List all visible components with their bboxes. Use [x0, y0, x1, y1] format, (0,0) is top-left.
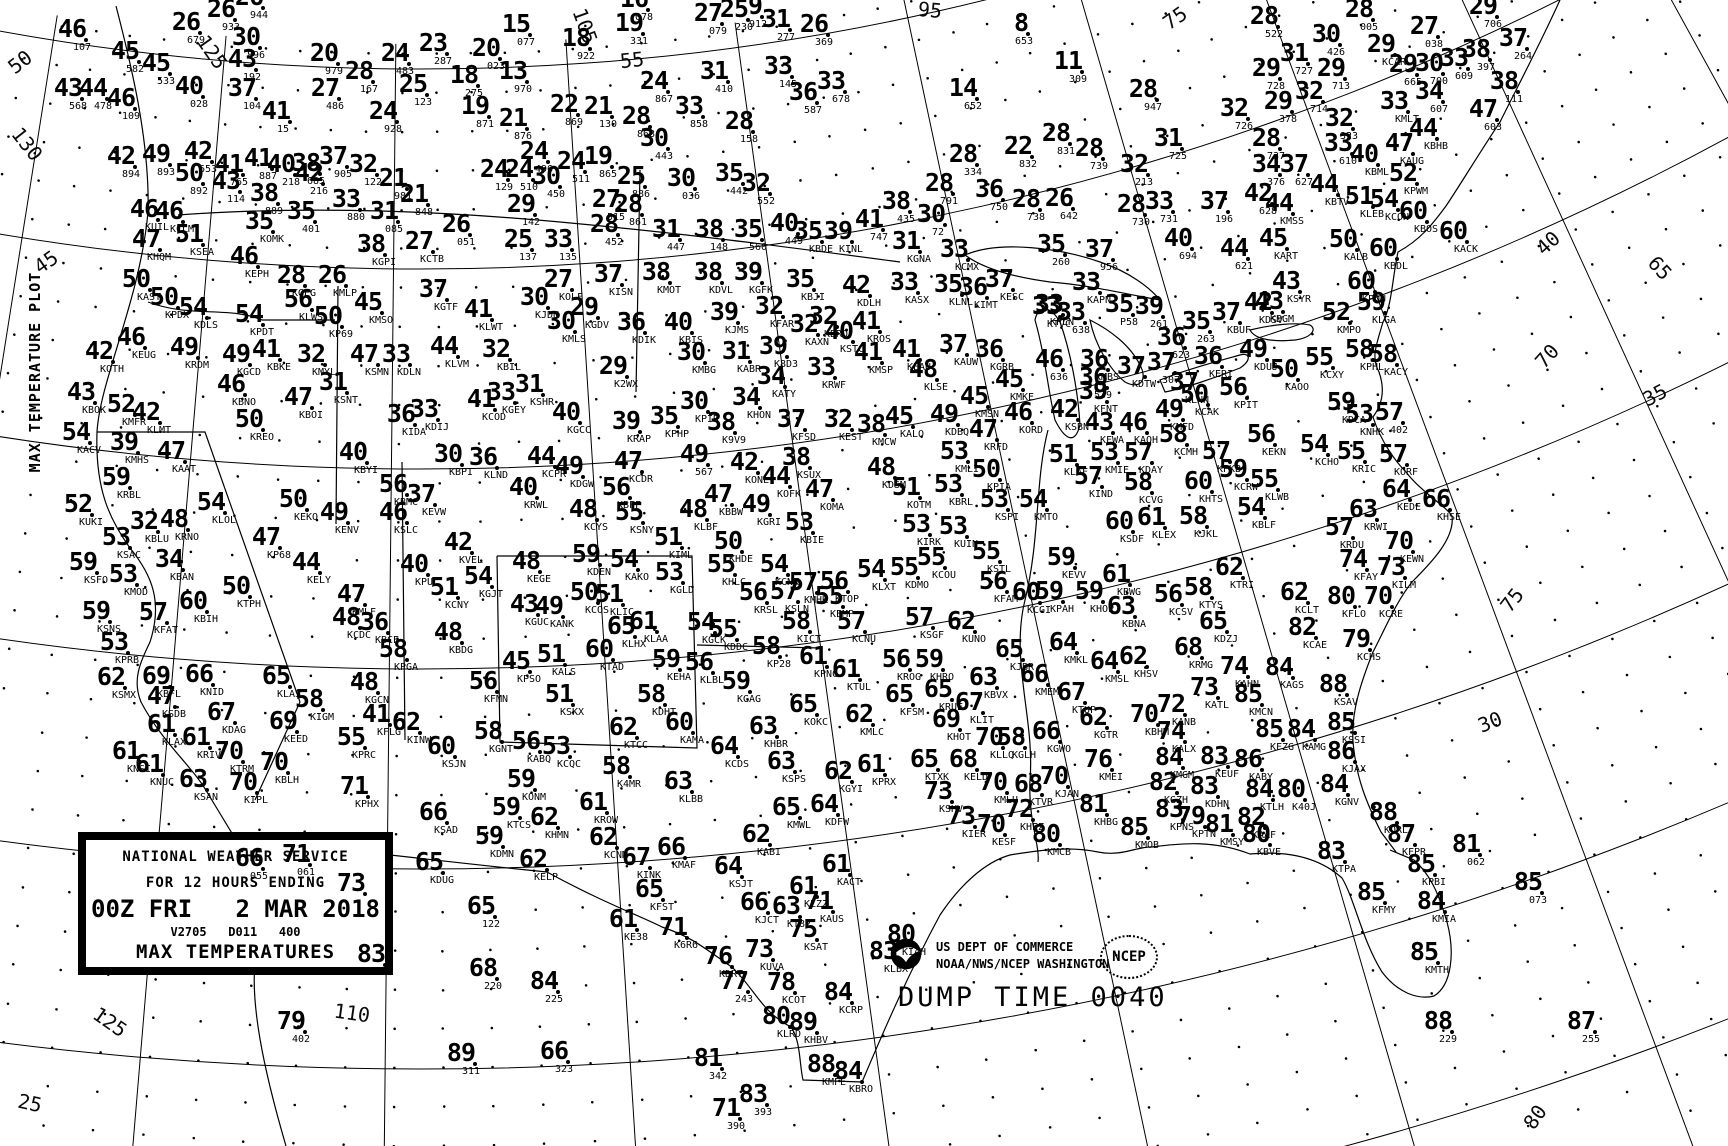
station-temp: 83 — [739, 1084, 767, 1105]
dump-time-label: DUMP TIME 0040 — [898, 982, 1168, 1013]
station-id: KEED — [284, 735, 308, 745]
station-id: KBHB — [1424, 142, 1448, 152]
station-id: 452 — [605, 238, 623, 248]
station-id: KHQM — [147, 253, 171, 263]
station-id: KRBL — [117, 491, 141, 501]
station-temp: 85 — [1407, 854, 1435, 875]
station-id: KBNA — [1122, 620, 1146, 630]
station-temp: 55 — [707, 554, 735, 575]
agency-line-2: NOAA/NWS/NCEP WASHINGTON — [936, 956, 1109, 973]
station-temp: 35 — [1182, 311, 1210, 332]
station-id: 831 — [1057, 147, 1075, 157]
station-id: 511 — [572, 175, 590, 185]
station-temp: 40 — [400, 554, 428, 575]
station-temp: 48 — [569, 499, 597, 520]
station-temp: 66 — [235, 848, 263, 869]
station-temp: 66 — [657, 837, 685, 858]
station-id: 747 — [870, 233, 888, 243]
station-temp: 40 — [339, 442, 367, 463]
station-id: KCRP — [839, 1006, 863, 1016]
station-temp: 39 — [734, 262, 762, 283]
station-id: K9V9 — [722, 436, 746, 446]
station-temp: 46 — [217, 374, 245, 395]
station-id: KGEY — [502, 406, 526, 416]
station-temp: 64 — [810, 794, 838, 815]
station-temp: 54 — [235, 304, 263, 325]
station-temp: 85 — [1327, 712, 1355, 733]
station-temp: 88 — [1319, 674, 1347, 695]
station-id: KLHX — [622, 640, 646, 650]
station-temp: 47 — [704, 484, 732, 505]
station-temp: 40 — [664, 312, 692, 333]
station-temp: 33 — [1145, 191, 1173, 212]
station-temp: 28 — [590, 214, 618, 235]
station-temp: 69 — [269, 711, 297, 732]
station-id: 123 — [414, 98, 432, 108]
station-id: KHBG — [1094, 818, 1118, 828]
station-id: KEKO — [294, 513, 318, 523]
station-id: KELY — [307, 576, 331, 586]
station-temp: 28 — [1129, 79, 1157, 100]
station-temp: 22 — [550, 94, 578, 115]
station-id: 652 — [964, 102, 982, 112]
station-temp: 28 — [1042, 123, 1070, 144]
station-temp: 34 — [732, 387, 760, 408]
station-temp: 62 — [947, 611, 975, 632]
station-temp: 61 — [609, 909, 637, 930]
station-id: 055 — [250, 872, 268, 882]
station-temp: 63 — [1107, 596, 1135, 617]
station-temp: 84 — [834, 1061, 862, 1082]
station-id: KCXY — [1320, 371, 1344, 381]
station-id: KHON — [747, 411, 771, 421]
station-temp: 47 — [147, 686, 175, 707]
station-temp: 84 — [1320, 774, 1348, 795]
station-temp: 47 — [614, 451, 642, 472]
station-temp: 84 — [824, 982, 852, 1003]
station-temp: 32 — [742, 173, 770, 194]
station-temp: 66 — [419, 802, 447, 823]
station-temp: 50 — [972, 459, 1000, 480]
station-temp: 8 — [1014, 13, 1028, 34]
station-temp: 31 — [319, 372, 347, 393]
station-temp: 19 — [461, 96, 489, 117]
station-id: P58 — [1120, 318, 1138, 328]
legend-product: MAX TEMPERATURES — [86, 941, 385, 963]
station-temp: 24 — [520, 141, 548, 162]
station-temp: 42 — [107, 146, 135, 167]
station-temp: 89 — [447, 1043, 475, 1064]
station-id: 552 — [757, 197, 775, 207]
station-id: KGPI — [372, 258, 396, 268]
station-temp: 46 — [1035, 349, 1063, 370]
station-temp: 59 — [915, 649, 943, 670]
station-temp: 59 — [102, 467, 130, 488]
station-temp: 42 — [730, 452, 758, 473]
station-temp: 33 — [544, 229, 572, 250]
station-id: KLBX — [884, 965, 908, 975]
station-temp: 49 — [680, 444, 708, 465]
station-temp: 23 — [419, 33, 447, 54]
station-id: KTVC — [1047, 320, 1071, 330]
station-temp: 33 — [487, 382, 515, 403]
station-temp: 43 — [54, 78, 82, 99]
station-temp: 64 — [1049, 632, 1077, 653]
station-temp: 57 — [1379, 444, 1407, 465]
station-id: 892 — [190, 187, 208, 197]
station-id: KDLN — [397, 368, 421, 378]
station-temp: 59 — [1035, 581, 1063, 602]
station-id: 893 — [157, 168, 175, 178]
station-temp: 68 — [949, 749, 977, 770]
station-id: KSAD — [434, 826, 458, 836]
station-id: KILM — [1392, 581, 1416, 591]
station-temp: 63 — [767, 751, 795, 772]
station-id: 730 — [1132, 218, 1150, 228]
station-id: KTCS — [507, 821, 531, 831]
station-temp: 57 — [1325, 517, 1353, 538]
station-temp: 50 — [1180, 384, 1208, 405]
station-temp: 62 — [609, 717, 637, 738]
station-id: 610 — [1339, 157, 1357, 167]
station-temp: 34 — [155, 549, 183, 570]
station-temp: 73 — [1377, 557, 1405, 578]
station-temp: 53 — [902, 514, 930, 535]
station-temp: 26 — [235, 0, 263, 7]
station-id: KHSV — [1134, 670, 1158, 680]
station-temp: 38 — [1462, 39, 1490, 60]
station-temp: 87 — [1387, 824, 1415, 845]
station-temp: 44 — [1409, 118, 1437, 139]
station-id: 079 — [709, 27, 727, 37]
station-temp: 50 — [150, 287, 178, 308]
station-id: KDMO — [905, 581, 929, 591]
station-id: KRNO — [175, 533, 199, 543]
station-id: KCAE — [1303, 641, 1327, 651]
station-temp: 36 — [360, 612, 388, 633]
station-temp: 55 — [1250, 469, 1278, 490]
station-temp: 31 — [370, 201, 398, 222]
station-temp: 52 — [64, 494, 92, 515]
station-temp: 62 — [1079, 707, 1107, 728]
station-temp: 82 — [1149, 772, 1177, 793]
station-id: KCLT — [1295, 606, 1319, 616]
station-temp: 73 — [337, 873, 365, 894]
station-id: 871 — [476, 120, 494, 130]
station-temp: 58 — [474, 721, 502, 742]
station-temp: 35 — [287, 201, 315, 222]
station-temp: 47 — [337, 584, 365, 605]
station-temp: 56 — [602, 477, 630, 498]
station-id: KSNT — [334, 396, 358, 406]
station-temp: 54 — [1019, 489, 1047, 510]
station-temp: 38 — [357, 234, 385, 255]
station-temp: 58 — [637, 684, 665, 705]
station-temp: 44 — [1220, 238, 1248, 259]
station-temp: 55 — [890, 557, 918, 578]
station-temp: 84 — [1155, 747, 1183, 768]
station-temp: 65 — [924, 679, 952, 700]
station-temp: 59 — [1357, 292, 1385, 313]
station-id: KFMN — [484, 695, 508, 705]
station-id: 880 — [347, 213, 365, 223]
station-temp: 70 — [1130, 704, 1158, 725]
station-id: KORD — [1019, 426, 1043, 436]
station-id: KEUG — [132, 351, 156, 361]
station-temp: 58 — [1124, 472, 1152, 493]
station-id: 378 — [1279, 115, 1297, 125]
station-id: KBBW — [719, 508, 743, 518]
station-temp: 30 — [1312, 24, 1340, 45]
station-temp: 44 — [1265, 193, 1293, 214]
station-temp: 70 — [977, 814, 1005, 835]
station-id: KSEA — [190, 248, 214, 258]
station-temp: 62 — [519, 849, 547, 870]
station-id: 894 — [122, 170, 140, 180]
station-id: 486 — [326, 102, 344, 112]
station-temp: 38 — [1490, 71, 1518, 92]
station-id: KCOS — [585, 606, 609, 616]
station-id: KMLS — [562, 335, 586, 345]
station-id: KLWB — [1265, 493, 1289, 503]
station-id: KANK — [550, 620, 574, 630]
station-id: KPRX — [872, 778, 896, 788]
station-temp: 47 — [969, 419, 997, 440]
station-temp: 65 — [910, 749, 938, 770]
station-id: 956 — [1100, 263, 1118, 273]
station-temp: 31 — [892, 231, 920, 252]
station-temp: 59 — [1075, 581, 1103, 602]
station-temp: 72 — [1005, 799, 1033, 820]
station-temp: 21 — [499, 108, 527, 129]
station-temp: 61 — [135, 754, 163, 775]
station-temp: 28 — [1075, 138, 1103, 159]
station-temp: 60 — [1399, 201, 1427, 222]
station-temp: 59 — [492, 797, 520, 818]
station-temp: 60 — [665, 712, 693, 733]
station-temp: 52 — [107, 394, 135, 415]
station-temp: 79 — [277, 1011, 305, 1032]
station-id: KRFD — [984, 443, 1008, 453]
station-temp: 55 — [815, 586, 843, 607]
station-id: KLOL — [212, 516, 236, 526]
station-temp: 84 — [530, 971, 558, 992]
station-temp: 28 — [1345, 0, 1373, 19]
station-temp: 48 — [679, 499, 707, 520]
station-temp: 61 — [799, 646, 827, 667]
station-temp: 62 — [742, 824, 770, 845]
station-temp: 54 — [197, 492, 225, 513]
station-temp: 51 — [545, 684, 573, 705]
station-id: KLSE — [924, 383, 948, 393]
station-id: KLBB — [679, 795, 703, 805]
station-id: 568 — [69, 102, 87, 112]
station-temp: 13 — [499, 61, 527, 82]
station-temp: 61 — [629, 611, 657, 632]
station-temp: 37 — [1117, 356, 1145, 377]
station-id: KTUL — [847, 683, 871, 693]
station-id: KAMA — [680, 736, 704, 746]
station-id: KSFO — [84, 576, 108, 586]
station-id: 567 — [695, 468, 713, 478]
station-id: KIDA — [402, 428, 426, 438]
station-id: KART — [1274, 252, 1298, 262]
station-id: 450 — [547, 190, 565, 200]
station-id: KSPI — [995, 513, 1019, 523]
station-temp: 33 — [940, 239, 968, 260]
station-id: 725 — [1169, 152, 1187, 162]
station-temp: 32 — [297, 344, 325, 365]
station-temp: 31 — [722, 341, 750, 362]
station-temp: 84 — [1417, 891, 1445, 912]
station-id: KBVE — [1257, 848, 1281, 858]
station-temp: 50 — [1329, 229, 1357, 250]
station-id: KMTH — [1425, 966, 1449, 976]
station-temp: 18 — [450, 65, 478, 86]
station-id: KHMN — [545, 831, 569, 841]
station-temp: 47 — [252, 527, 280, 548]
station-temp: 60 — [585, 639, 613, 660]
station-id: 229 — [1439, 1035, 1457, 1045]
station-id: KGNV — [1335, 798, 1359, 808]
station-id: KEDE — [1397, 503, 1421, 513]
station-temp: 73 — [745, 939, 773, 960]
station-id: KGTF — [434, 303, 458, 313]
station-id: 947 — [1144, 103, 1162, 113]
station-temp: 54 — [610, 549, 638, 570]
station-temp: 30 — [547, 311, 575, 332]
station-temp: 70 — [979, 772, 1007, 793]
station-temp: 85 — [1410, 942, 1438, 963]
station-id: KLND — [484, 471, 508, 481]
station-temp: 47 — [1469, 99, 1497, 120]
station-temp: 65 — [772, 797, 800, 818]
station-id: KSAT — [804, 943, 828, 953]
station-temp: 11 — [1054, 51, 1082, 72]
station-temp: 36 — [789, 82, 817, 103]
station-temp: 31 — [1280, 43, 1308, 64]
station-id: KSMX — [112, 691, 136, 701]
station-id: KLXT — [872, 583, 896, 593]
station-temp: 70 — [1040, 766, 1068, 787]
station-id: KJMS — [725, 326, 749, 336]
station-temp: 53 — [102, 527, 130, 548]
station-temp: 61 — [789, 876, 817, 897]
station-id: KBLF — [1252, 521, 1276, 531]
station-temp: 44 — [527, 446, 555, 467]
station-temp: 50 — [235, 409, 263, 430]
station-temp: 41 — [362, 704, 390, 725]
station-id: KCHS — [1357, 653, 1381, 663]
station-id: 260 — [1052, 258, 1070, 268]
station-temp: 54 — [179, 297, 207, 318]
station-id: KGLH — [1012, 751, 1036, 761]
station-temp: 39 — [824, 221, 852, 242]
station-temp: 64 — [1090, 651, 1118, 672]
station-id: 603 — [1484, 123, 1502, 133]
station-temp: 68 — [1174, 637, 1202, 658]
station-temp: 51 — [654, 527, 682, 548]
station-id: KALO — [900, 430, 924, 440]
station-temp: 45 — [885, 406, 913, 427]
station-temp: 41 — [464, 299, 492, 320]
station-id: KDTW — [1132, 380, 1156, 390]
station-id: 865 — [599, 170, 617, 180]
station-temp: 50 — [122, 269, 150, 290]
station-id: KLWT — [479, 323, 503, 333]
station-temp: 65 — [635, 879, 663, 900]
station-id: KCHO — [1315, 458, 1339, 468]
station-id: 694 — [1179, 252, 1197, 262]
station-temp: 88 — [807, 1054, 835, 1075]
station-temp: 61 — [1137, 507, 1165, 528]
station-temp: 41 — [252, 339, 280, 360]
station-temp: 25 — [399, 74, 427, 95]
station-temp: 81 — [1079, 794, 1107, 815]
station-temp: 28 — [1250, 6, 1278, 27]
station-id: KREO — [250, 433, 274, 443]
station-id: KE38 — [624, 933, 648, 943]
station-id: KPIT — [1234, 401, 1258, 411]
station-id: KABI — [757, 848, 781, 858]
station-id: KASX — [905, 296, 929, 306]
station-id: K2WX — [614, 380, 638, 390]
station-id: 638 — [1072, 326, 1090, 336]
station-temp: 89 — [789, 1012, 817, 1033]
station-id: KSYR — [1287, 295, 1311, 305]
station-id: KBKE — [267, 363, 291, 373]
station-temp: 49 — [320, 502, 348, 523]
station-temp: 32 — [482, 339, 510, 360]
station-id: KCDS — [725, 760, 749, 770]
station-id: KDFW — [825, 818, 849, 828]
station-id: KPSO — [517, 675, 541, 685]
station-temp: 49 — [1239, 339, 1267, 360]
station-temp: 51 — [430, 577, 458, 598]
station-temp: 62 — [1215, 557, 1243, 578]
station-temp: 21 — [400, 184, 428, 205]
station-id: 609 — [1455, 72, 1473, 82]
station-id: KCNY — [445, 601, 469, 611]
station-id: KFMY — [1372, 906, 1396, 916]
station-id: KDVL — [709, 286, 733, 296]
station-id: 726 — [1235, 122, 1253, 132]
station-id: K4MR — [617, 780, 641, 790]
station-id: KMCB — [1047, 848, 1071, 858]
station-temp: 24 — [480, 159, 508, 180]
station-temp: 37 — [228, 78, 256, 99]
station-id: KEKN — [1262, 448, 1286, 458]
station-temp: 56 — [882, 649, 910, 670]
station-temp: 31 — [762, 9, 790, 30]
station-temp: 46 — [379, 502, 407, 523]
station-temp: 36 — [1080, 349, 1108, 370]
station-temp: 58 — [379, 639, 407, 660]
station-temp: 61 — [1102, 564, 1130, 585]
station-temp: 81 — [1205, 814, 1233, 835]
station-temp: 48 — [434, 622, 462, 643]
station-id: KMAF — [672, 861, 696, 871]
station-temp: 60 — [179, 591, 207, 612]
station-temp: 30 — [680, 391, 708, 412]
station-temp: 33 — [807, 357, 835, 378]
station-temp: 58 — [1369, 344, 1397, 365]
station-id: 135 — [559, 253, 577, 263]
station-temp: 65 — [467, 896, 495, 917]
station-id: 636 — [1050, 373, 1068, 383]
station-temp: 61 — [832, 659, 860, 680]
station-temp: 48 — [909, 359, 937, 380]
